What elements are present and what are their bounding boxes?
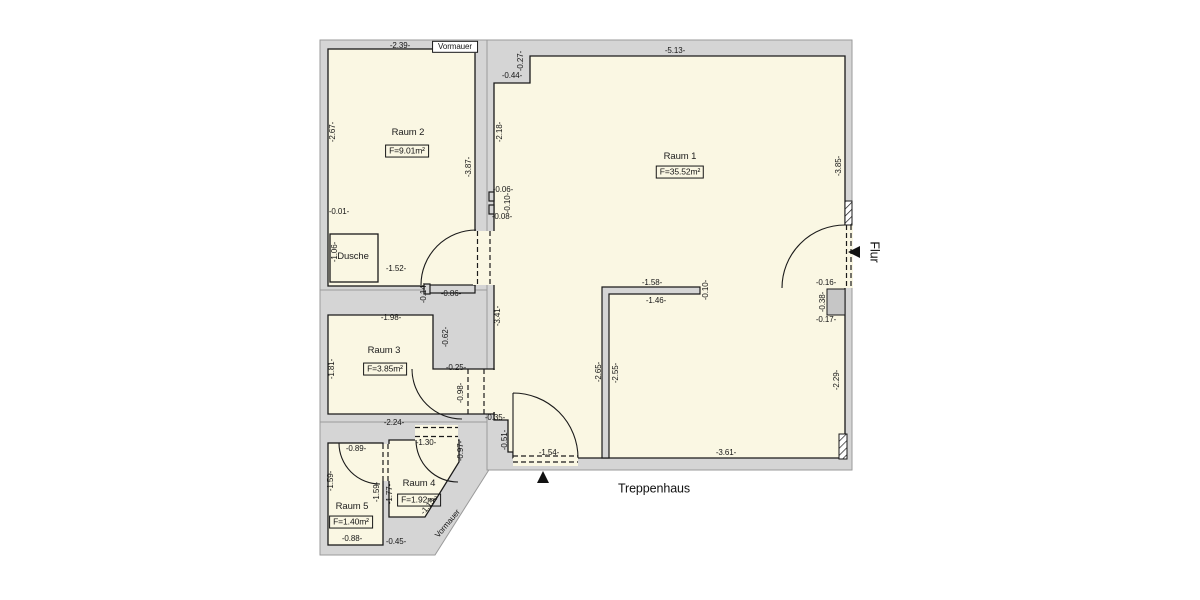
dimension-label: -0.97- [457,441,465,461]
room-label: Raum 4 [403,479,436,489]
dimension-label: -2.18- [496,122,504,142]
zone-label: Flur [867,241,880,262]
dimension-label: -0.88- [342,535,362,543]
dimension-label: -0.38- [819,292,827,312]
dimension-label: -2.29- [833,370,841,390]
room-area-label: F=1.40m² [329,516,373,529]
dimension-label: -3.85- [835,156,843,176]
dimension-label: -0.86- [441,290,461,298]
dimension-label: -2.24- [384,419,404,427]
dimension-label: -0.16- [816,279,836,287]
room-area-label: F=9.01m² [385,145,429,158]
dimension-label: Vormauer [434,508,462,539]
dimension-label: -0.89- [346,445,366,453]
dimension-label: -0.08- [492,213,512,221]
dimension-label: -0.44- [502,72,522,80]
dimension-label: -0.01- [329,208,349,216]
dimension-label: -1.46- [646,297,666,305]
dimension-label: -0.25- [446,364,466,372]
dimension-label: -3.87- [465,157,473,177]
dimension-label: -0.14- [420,283,428,303]
dimension-label: -0.10- [702,280,710,300]
room-label: Raum 3 [368,346,401,356]
dimension-label: -1.98- [381,314,401,322]
dimension-label: -5.13- [665,47,685,55]
dimension-label: -0.98- [457,383,465,403]
dimension-label: -2.39- [390,42,410,50]
dimension-label: -2.65- [595,362,603,382]
vormauer-label: Vormauer [432,41,478,53]
room-label: Raum 5 [336,502,369,512]
dimension-label: -0.51- [501,430,509,450]
dimension-label: -0.10- [504,193,512,213]
dimension-label: -0.35- [485,414,505,422]
dimension-label: -1.59- [327,471,335,491]
dimension-label: -0.27- [517,51,525,71]
floor-plan: -2.39-Vormauer-0.44--0.27--5.13--2.67-Ra… [0,0,1200,600]
room-label: Raum 1 [664,152,697,162]
dimension-label: -1.59- [373,482,381,502]
dimension-label: -3.61- [716,449,736,457]
dimension-label: -1.52- [386,265,406,273]
dimension-label: -1.30- [416,439,436,447]
dimension-label: -0.62- [442,327,450,347]
dimension-label: -0.45- [386,538,406,546]
dimension-label: -0.17- [816,316,836,324]
room-label: Raum 2 [392,128,425,138]
room-label: Dusche [337,252,369,262]
dimension-label: -1.77- [386,484,394,504]
room-area-label: F=35.52m² [656,166,704,179]
room-area-label: F=3.85m² [363,363,407,376]
dimension-label: -3.41- [494,306,502,326]
dimension-label: -2.67- [329,122,337,142]
zone-label: Treppenhaus [618,482,690,495]
label-layer: -2.39-Vormauer-0.44--0.27--5.13--2.67-Ra… [0,0,1200,600]
dimension-label: -1.58- [642,279,662,287]
dimension-label: -1.81- [328,359,336,379]
dimension-label: -2.55- [612,363,620,383]
dimension-label: -1.54- [539,449,559,457]
